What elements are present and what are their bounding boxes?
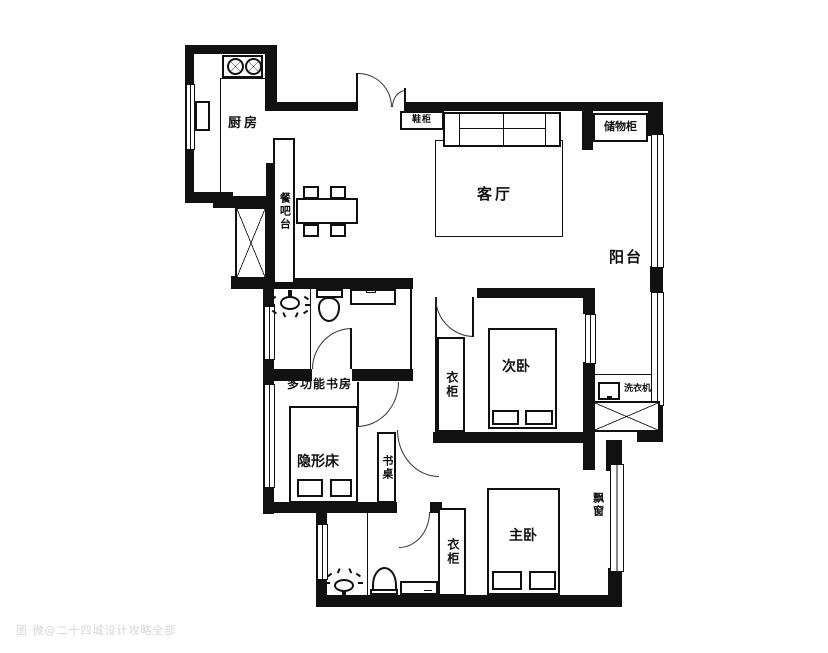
shower-head-icon <box>280 296 300 310</box>
shower-ray <box>270 304 275 306</box>
shower-ray <box>295 312 298 317</box>
sofa-armrest-line <box>545 112 546 147</box>
bathroom-sink-detail <box>424 590 432 591</box>
watermark: 图·微@二十四城设计攻略全部 <box>16 622 177 638</box>
dining-bar-label: 餐吧台 <box>278 192 291 231</box>
entry-door-right-leaf <box>404 88 406 107</box>
shower-ray <box>283 312 286 317</box>
shower-ray <box>304 296 309 300</box>
dining-chair <box>303 186 319 199</box>
wall-bottom <box>316 595 622 607</box>
window-secondary-balcony <box>585 314 596 364</box>
sofa-armrest-line <box>459 112 460 147</box>
toilet-bowl <box>318 297 340 322</box>
storage-cabinet: 储物柜 <box>593 113 648 142</box>
desk: 书桌 <box>377 432 396 503</box>
shower-ray <box>337 568 340 573</box>
counter-edge-horizontal <box>220 78 265 79</box>
floor-plan: 厨房 餐吧台 鞋柜 客厅 储物柜 阳台 洗衣机 多功能书房 隐形床 书桌 <box>0 0 828 653</box>
wall-master-top-left <box>263 502 397 513</box>
window-kitchen <box>186 84 195 150</box>
sofa-seat-seam <box>459 128 545 129</box>
washing-machine-detail <box>607 396 612 398</box>
lower-bath-partition <box>367 512 368 595</box>
wall-entry-left <box>265 102 358 111</box>
window-balcony-upper <box>651 134 664 268</box>
toilet-bowl <box>372 567 397 591</box>
kitchen-label: 厨房 <box>228 117 260 132</box>
wall-balcony-right-mid <box>650 266 663 292</box>
wall-secondary-bottom <box>433 432 583 443</box>
laundry-divider <box>593 374 653 375</box>
wall-top-right-pillar <box>648 102 663 136</box>
dining-table <box>296 198 358 224</box>
wall-secondary-balcony-a <box>583 288 595 314</box>
kitchen-door <box>195 101 210 131</box>
window-bathroom <box>264 306 275 360</box>
secondary-bedroom-label: 次卧 <box>502 359 530 375</box>
sofa-center-seam <box>503 112 504 147</box>
wall-chunk-a <box>583 430 595 470</box>
dining-chair <box>303 224 319 237</box>
bathroom-partition <box>310 289 311 369</box>
stove-burner-icon <box>227 58 244 75</box>
balcony-label: 阳台 <box>609 249 643 266</box>
pillow <box>492 571 522 590</box>
shower-stem <box>342 590 346 596</box>
study-door-arc <box>357 382 399 427</box>
wall-entry-right <box>404 102 650 111</box>
wardrobe-master-label: 衣柜 <box>445 538 459 566</box>
dining-bar: 餐吧台 <box>273 138 295 284</box>
hall-door-arc <box>397 430 439 477</box>
wardrobe-secondary: 衣柜 <box>437 337 465 432</box>
living-room-label: 客厅 <box>477 186 513 203</box>
bathroom-sink <box>400 581 438 595</box>
study-label: 多功能书房 <box>287 378 352 392</box>
master-door-arc <box>399 512 430 548</box>
shower-ray <box>349 568 352 573</box>
pillow <box>525 410 553 425</box>
bathroom-sink-handle <box>366 290 376 293</box>
wardrobe-master: 衣柜 <box>438 508 466 596</box>
dining-chair <box>330 186 346 199</box>
sofa <box>443 112 561 147</box>
shower-ray <box>325 582 330 584</box>
master-bedroom-label: 主卧 <box>509 528 537 544</box>
toilet-base <box>370 589 398 595</box>
desk-label: 书桌 <box>380 455 393 481</box>
shower-ray <box>305 304 310 306</box>
counter-edge-vertical <box>220 78 221 192</box>
shoe-cabinet-label: 鞋柜 <box>412 115 432 125</box>
shoe-cabinet: 鞋柜 <box>400 111 444 130</box>
secondary-door-arc <box>435 297 474 337</box>
hidden-bed-label: 隐形床 <box>297 454 339 470</box>
laundry-sink <box>593 401 660 432</box>
entry-door-left-arc <box>358 73 392 107</box>
pillow <box>330 479 352 497</box>
pillow <box>492 410 519 425</box>
secondary-door-leaf <box>472 297 474 337</box>
dining-chair <box>330 224 346 237</box>
shower-ray <box>303 310 308 314</box>
stove-burner-icon <box>245 58 262 75</box>
pillow <box>297 479 323 497</box>
elevator-shaft <box>235 207 267 279</box>
wall-kitchen-top <box>185 45 277 54</box>
storage-cabinet-label: 储物柜 <box>604 121 637 134</box>
window-lower-left <box>317 524 328 580</box>
window-study <box>264 384 275 488</box>
shower-ray <box>356 573 361 577</box>
bathroom-door-leaf <box>350 328 352 369</box>
window-balcony-lower <box>651 292 664 406</box>
wardrobe-secondary-label: 衣柜 <box>444 371 458 399</box>
wall-secondary-top <box>477 288 583 298</box>
wall-storage-pillar <box>582 109 593 150</box>
hall-left-partition <box>410 289 412 369</box>
shower-ray <box>358 582 363 584</box>
pillow <box>529 571 556 590</box>
bay-window-label: 飘窗 <box>591 492 604 518</box>
washing-machine-label: 洗衣机 <box>624 384 651 394</box>
window-bay <box>610 464 624 572</box>
wall-bathroom-bottom-right <box>352 369 413 381</box>
bathroom-door-arc <box>312 328 352 369</box>
